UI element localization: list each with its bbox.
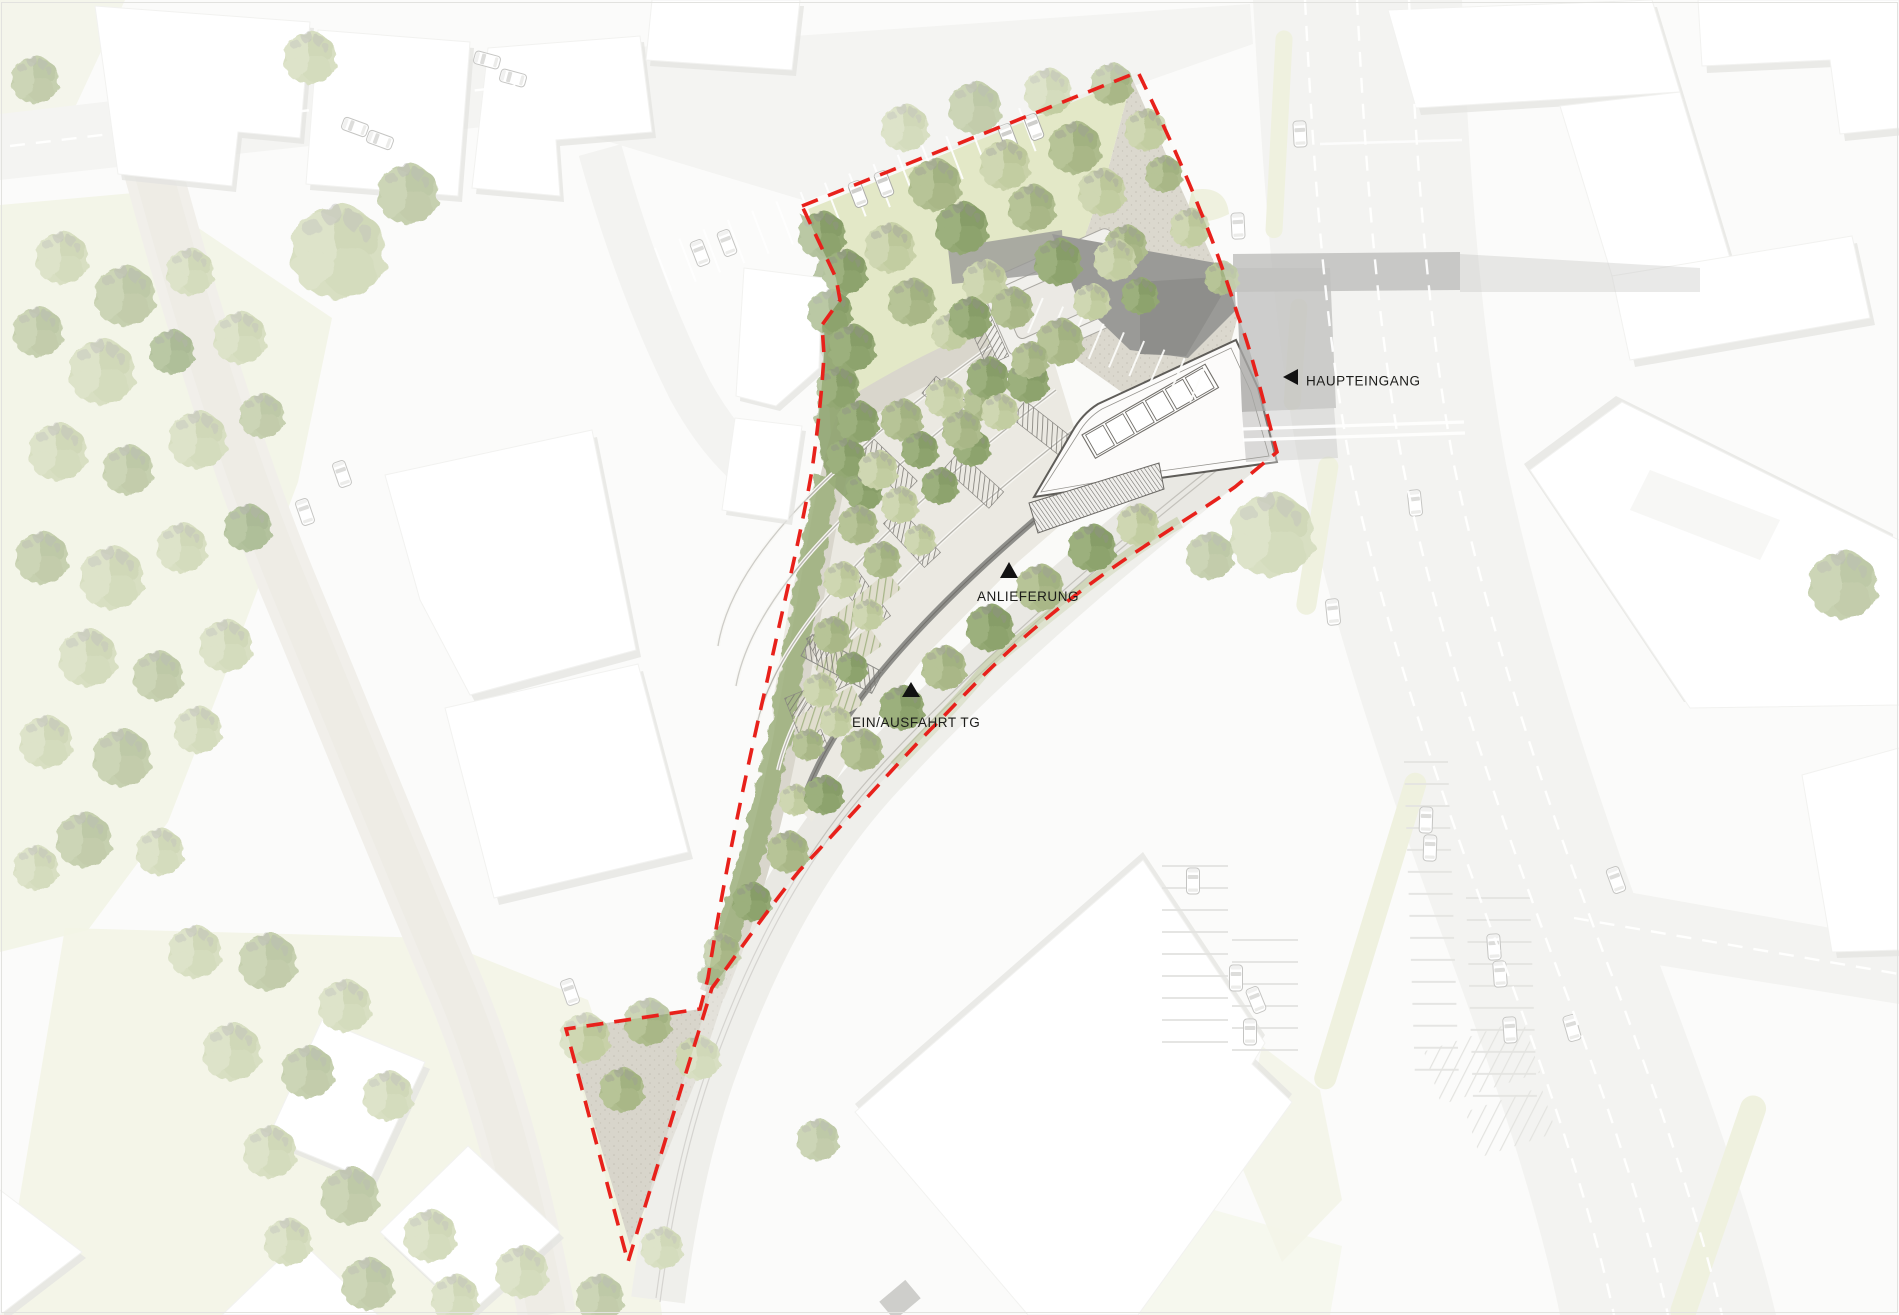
- context-fade-overlay: [0, 0, 1899, 1315]
- site-plan-sheet: HAUPTEINGANG ANLIEFERUNG EIN/AUSFAHRT TG: [0, 0, 1899, 1315]
- label-haupteingang: HAUPTEINGANG: [1306, 374, 1421, 389]
- site-plan-canvas: HAUPTEINGANG ANLIEFERUNG EIN/AUSFAHRT TG: [0, 0, 1899, 1315]
- label-anlieferung: ANLIEFERUNG: [977, 589, 1079, 604]
- label-ein-ausfahrt-tg: EIN/AUSFAHRT TG: [852, 715, 980, 730]
